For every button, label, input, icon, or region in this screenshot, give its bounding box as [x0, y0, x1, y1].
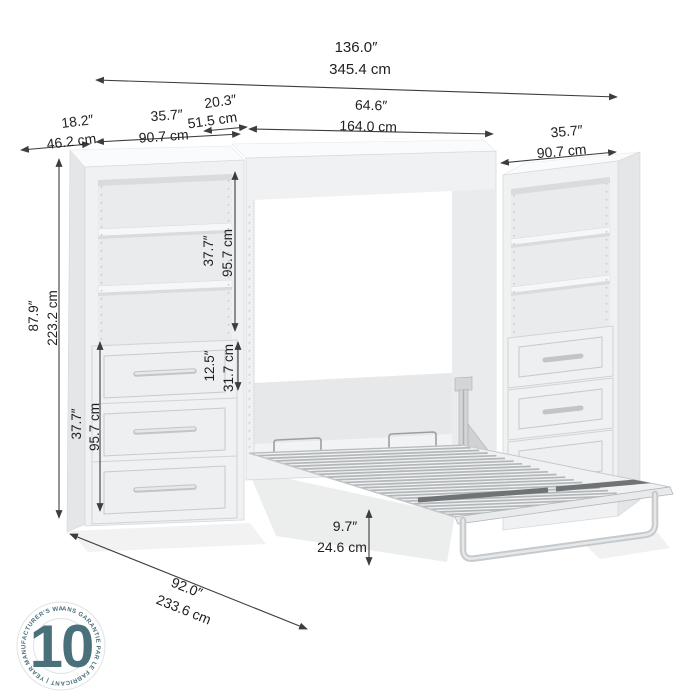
dim-bed-width-cm: 164.0 cm — [339, 117, 397, 135]
dim-overall-width: 136.0″ 345.4 cm — [96, 39, 617, 97]
dim-bed-cabinet-depth: 20.3″ 51.5 cm — [187, 91, 247, 132]
warranty-years: 10 — [30, 613, 93, 680]
dim-shelf-section-inches: 37.7″ — [201, 235, 216, 266]
diagram-canvas: 136.0″ 345.4 cm 18.2″ 46.2 cm 35.7″ 90.7… — [0, 0, 700, 700]
dim-bed-cabinet-width: 64.6″ 164.0 cm — [249, 97, 493, 135]
dim-bed-width-inches: 64.6″ — [355, 97, 388, 114]
dim-side-depth-cm: 46.2 cm — [46, 130, 97, 152]
dim-drawer-section-cm: 95.7 cm — [87, 403, 102, 451]
left-unit-floor-shadow — [70, 523, 266, 552]
dim-drawer-section-inches: 37.7″ — [69, 408, 84, 439]
dim-bed-depth-inches: 20.3″ — [203, 91, 237, 111]
dim-left-width-inches: 35.7″ — [150, 106, 183, 124]
dim-left-width-cm: 90.7 cm — [138, 126, 189, 145]
left-storage-unit — [67, 146, 244, 532]
dim-frame-height-cm: 24.6 cm — [317, 539, 367, 555]
bed-cabinet-right-panel — [452, 189, 496, 474]
dim-total-height: 87.9″ 223.2 cm — [26, 159, 60, 518]
dim-height-cm: 223.2 cm — [45, 290, 60, 346]
product-dimension-diagram: 136.0″ 345.4 cm 18.2″ 46.2 cm 35.7″ 90.7… — [0, 0, 700, 700]
dim-shelf-section-cm: 95.7 cm — [220, 229, 235, 277]
dim-overall-width-inches: 136.0″ — [335, 39, 379, 56]
dim-side-depth-inches: 18.2″ — [60, 111, 94, 131]
dim-open-depth-cm: 233.6 cm — [154, 591, 213, 627]
dim-arrow — [96, 80, 617, 97]
right-unit-shelf-opening — [511, 177, 610, 342]
right-unit-side-panel — [618, 152, 640, 516]
piston-cap — [455, 377, 472, 391]
murphy-bed-cabinet — [232, 140, 496, 480]
dim-height-inches: 87.9″ — [26, 300, 41, 331]
dim-side-unit-depth: 18.2″ 46.2 cm — [21, 111, 97, 152]
dim-overall-width-cm: 345.4 cm — [329, 61, 391, 78]
dim-drawer-inches: 12.5″ — [202, 350, 217, 381]
dim-right-width-inches: 35.7″ — [550, 122, 584, 141]
dim-frame-height-inches: 9.7″ — [333, 518, 357, 534]
left-unit-side-panel — [67, 150, 85, 532]
dim-open-bed-depth: 92.0″ 233.6 cm — [70, 534, 307, 629]
dim-drawer-cm: 31.7 cm — [221, 344, 236, 392]
bed-cabinet-opening — [254, 191, 452, 383]
